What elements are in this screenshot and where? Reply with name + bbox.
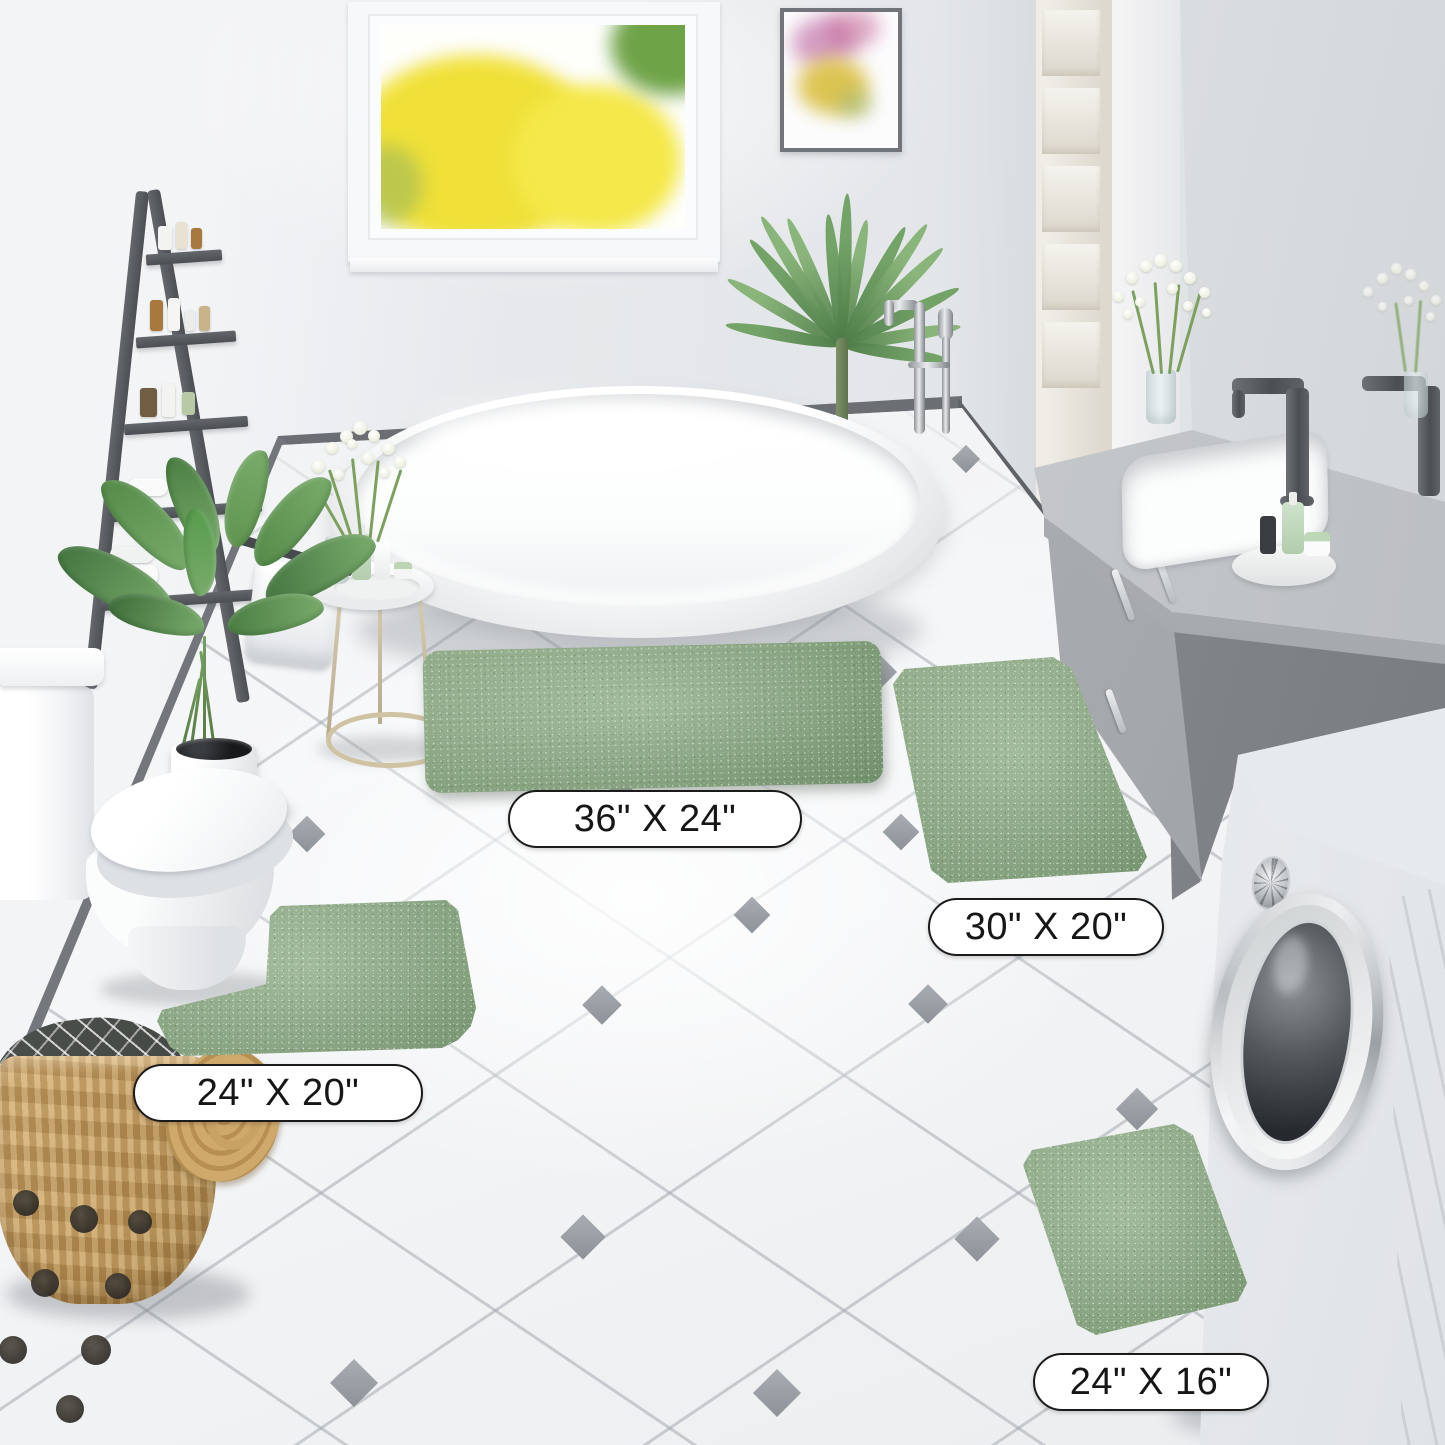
bathtub-highlight bbox=[420, 398, 760, 478]
window-view bbox=[381, 25, 685, 229]
basket-dot bbox=[13, 1190, 39, 1216]
tray-white-jar bbox=[1304, 532, 1330, 556]
cabinet-niche bbox=[1042, 244, 1100, 310]
window-sill bbox=[350, 258, 718, 272]
toilet-tank bbox=[0, 686, 94, 900]
size-label-30x20: 30" X 20" bbox=[928, 898, 1164, 956]
flower-bloom bbox=[1426, 312, 1435, 321]
size-label-text: 30" X 20" bbox=[965, 906, 1127, 949]
shelf-item bbox=[158, 226, 172, 250]
table-jar bbox=[394, 562, 412, 579]
flower-bloom bbox=[1404, 296, 1413, 305]
flower-bloom bbox=[1405, 269, 1416, 280]
shelf-item bbox=[150, 300, 163, 331]
tray-green-bottle bbox=[1282, 502, 1304, 554]
flower-bloom bbox=[1202, 308, 1211, 317]
bathroom-scene: 36" X 24" 30" X 20" 24" X 20" 24" X 16" bbox=[0, 0, 1445, 1445]
flower-bloom bbox=[1377, 273, 1388, 284]
counter-flower-vase bbox=[1146, 370, 1176, 424]
table-white-bottle bbox=[374, 540, 390, 580]
flower-bloom bbox=[368, 430, 380, 442]
flower-bloom bbox=[1363, 287, 1373, 297]
flower-bloom bbox=[394, 456, 406, 468]
shelf-item bbox=[191, 228, 202, 249]
basket-dot bbox=[70, 1205, 98, 1233]
flower-bloom bbox=[1123, 309, 1133, 319]
flower-bloom bbox=[347, 439, 357, 449]
flower-bloom bbox=[379, 467, 390, 478]
flower-bloom bbox=[1167, 283, 1178, 294]
cabinet-niche bbox=[1042, 88, 1100, 154]
green-foliage bbox=[611, 25, 685, 95]
flower-bloom bbox=[1113, 291, 1124, 302]
yellow-tree-2 bbox=[511, 85, 681, 229]
size-label-text: 24" X 16" bbox=[1070, 1361, 1232, 1404]
sink-faucet-post bbox=[1286, 388, 1309, 502]
plant-pot-pebbles bbox=[176, 738, 252, 760]
shelf-item bbox=[168, 298, 180, 331]
basket-dot bbox=[128, 1210, 152, 1234]
basket-dot bbox=[0, 1336, 27, 1364]
flower-bloom bbox=[1126, 272, 1138, 284]
tray-bottle-pump bbox=[1289, 492, 1297, 505]
shelf-item bbox=[140, 388, 157, 417]
flower-bloom bbox=[1135, 297, 1145, 307]
flower-bloom bbox=[1378, 302, 1387, 311]
cabinet-niche bbox=[1042, 322, 1100, 388]
flower-bloom bbox=[1184, 272, 1196, 284]
flower-bloom bbox=[1170, 260, 1182, 272]
size-label-text: 36" X 24" bbox=[574, 798, 736, 841]
size-label-24x20: 24" X 20" bbox=[133, 1064, 423, 1122]
flower-bloom bbox=[312, 460, 325, 473]
sink-faucet-spout bbox=[1232, 390, 1245, 418]
flower-bloom bbox=[353, 421, 367, 435]
rug-36x24 bbox=[422, 641, 883, 793]
flower-bloom bbox=[1419, 281, 1429, 291]
flower-bloom bbox=[333, 469, 344, 480]
flower-bloom bbox=[326, 442, 338, 454]
size-label-text: 24" X 20" bbox=[197, 1072, 359, 1115]
flower-bloom bbox=[382, 442, 395, 455]
art-magenta-blob bbox=[824, 8, 880, 48]
shelf-item bbox=[185, 310, 195, 331]
cabinet-niche bbox=[1042, 166, 1100, 232]
cabinet-niche bbox=[1042, 10, 1100, 76]
tub-faucet-spout-tip bbox=[884, 300, 894, 326]
basket-dot bbox=[56, 1395, 84, 1423]
flower-bloom bbox=[1140, 260, 1152, 272]
tub-faucet-crossbar bbox=[908, 362, 950, 368]
side-table-leg bbox=[378, 596, 382, 724]
shelf-item bbox=[176, 222, 187, 249]
size-label-36x24: 36" X 24" bbox=[508, 790, 802, 848]
flower-bloom bbox=[362, 452, 374, 464]
tray-dark-bottle bbox=[1260, 516, 1276, 554]
flower-bloom bbox=[1431, 295, 1441, 305]
mirror-reflected-vase bbox=[1404, 372, 1428, 418]
flower-bloom bbox=[1154, 254, 1167, 267]
basket-dot bbox=[105, 1273, 131, 1299]
size-label-24x16: 24" X 16" bbox=[1033, 1353, 1269, 1411]
shelf-item bbox=[182, 392, 195, 415]
tub-hand-shower-hose bbox=[942, 336, 950, 434]
toilet-tank-lid bbox=[0, 648, 104, 686]
flower-bloom bbox=[1183, 301, 1193, 311]
art-green-blob bbox=[836, 90, 872, 118]
flower-bloom bbox=[1199, 287, 1210, 298]
shelf-item bbox=[162, 384, 175, 417]
basket-dot bbox=[31, 1269, 59, 1297]
framed-artwork bbox=[780, 8, 902, 152]
flower-bloom bbox=[1391, 263, 1402, 274]
basket-dot bbox=[81, 1335, 111, 1365]
shelf-item bbox=[199, 306, 210, 331]
tub-faucet-riser bbox=[914, 302, 925, 434]
